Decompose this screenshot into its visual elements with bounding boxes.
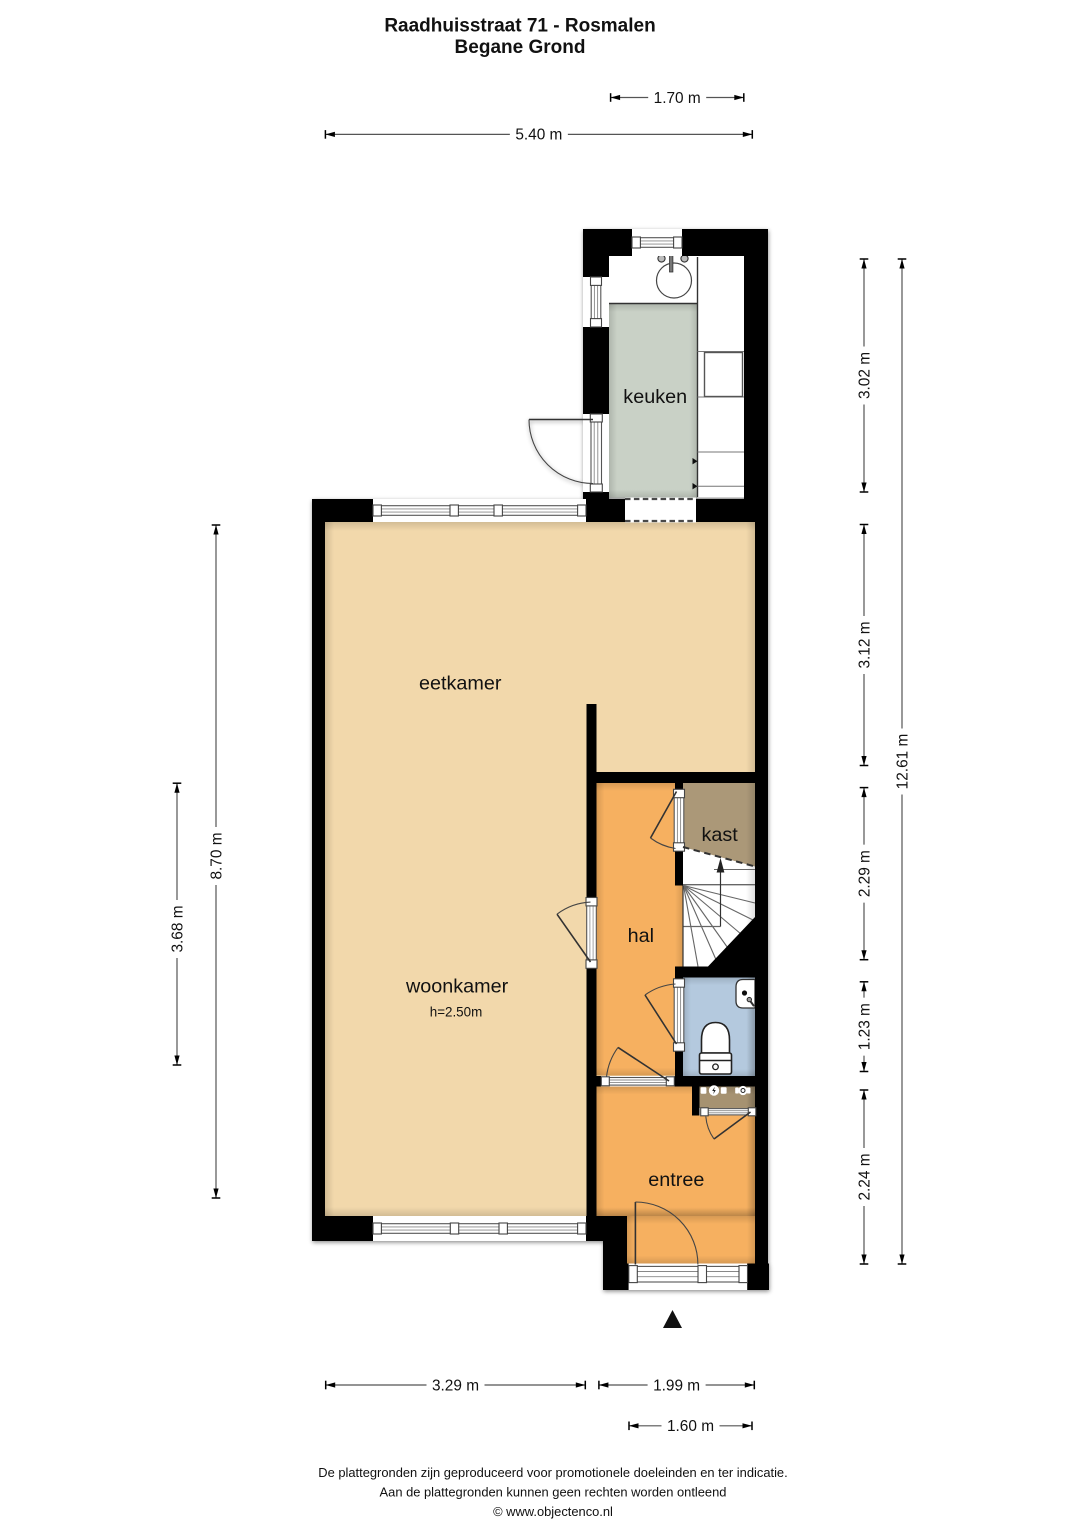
svg-text:Begane Grond: Begane Grond <box>455 37 586 58</box>
svg-text:8.70 m: 8.70 m <box>208 832 225 879</box>
svg-text:1.60 m: 1.60 m <box>667 1418 714 1435</box>
svg-text:eetkamer: eetkamer <box>419 673 502 695</box>
svg-text:3.02 m: 3.02 m <box>856 352 873 399</box>
svg-text:hal: hal <box>628 925 654 947</box>
svg-text:kast: kast <box>701 824 738 846</box>
svg-text:Raadhuisstraat 71 - Rosmalen: Raadhuisstraat 71 - Rosmalen <box>384 16 655 37</box>
svg-text:woonkamer: woonkamer <box>405 976 509 998</box>
svg-text:3.12 m: 3.12 m <box>856 621 873 668</box>
svg-text:5.40 m: 5.40 m <box>515 127 562 144</box>
svg-text:3.68 m: 3.68 m <box>169 905 186 952</box>
svg-text:12.61 m: 12.61 m <box>894 734 911 790</box>
svg-text:2.24 m: 2.24 m <box>856 1153 873 1200</box>
svg-text:3.29 m: 3.29 m <box>432 1377 479 1394</box>
svg-text:© www.objectenco.nl: © www.objectenco.nl <box>493 1504 613 1519</box>
svg-text:1.23 m: 1.23 m <box>856 1003 873 1050</box>
svg-text:2.29 m: 2.29 m <box>856 850 873 897</box>
svg-text:keuken: keuken <box>623 386 687 408</box>
svg-text:1.70 m: 1.70 m <box>654 90 701 107</box>
svg-text:h=2.50m: h=2.50m <box>430 1005 482 1020</box>
svg-text:Aan de plattegronden kunnen ge: Aan de plattegronden kunnen geen rechten… <box>380 1485 727 1500</box>
svg-text:De plattegronden zijn geproduc: De plattegronden zijn geproduceerd voor … <box>318 1465 787 1480</box>
svg-text:1.99 m: 1.99 m <box>653 1377 700 1394</box>
svg-text:entree: entree <box>648 1169 704 1191</box>
